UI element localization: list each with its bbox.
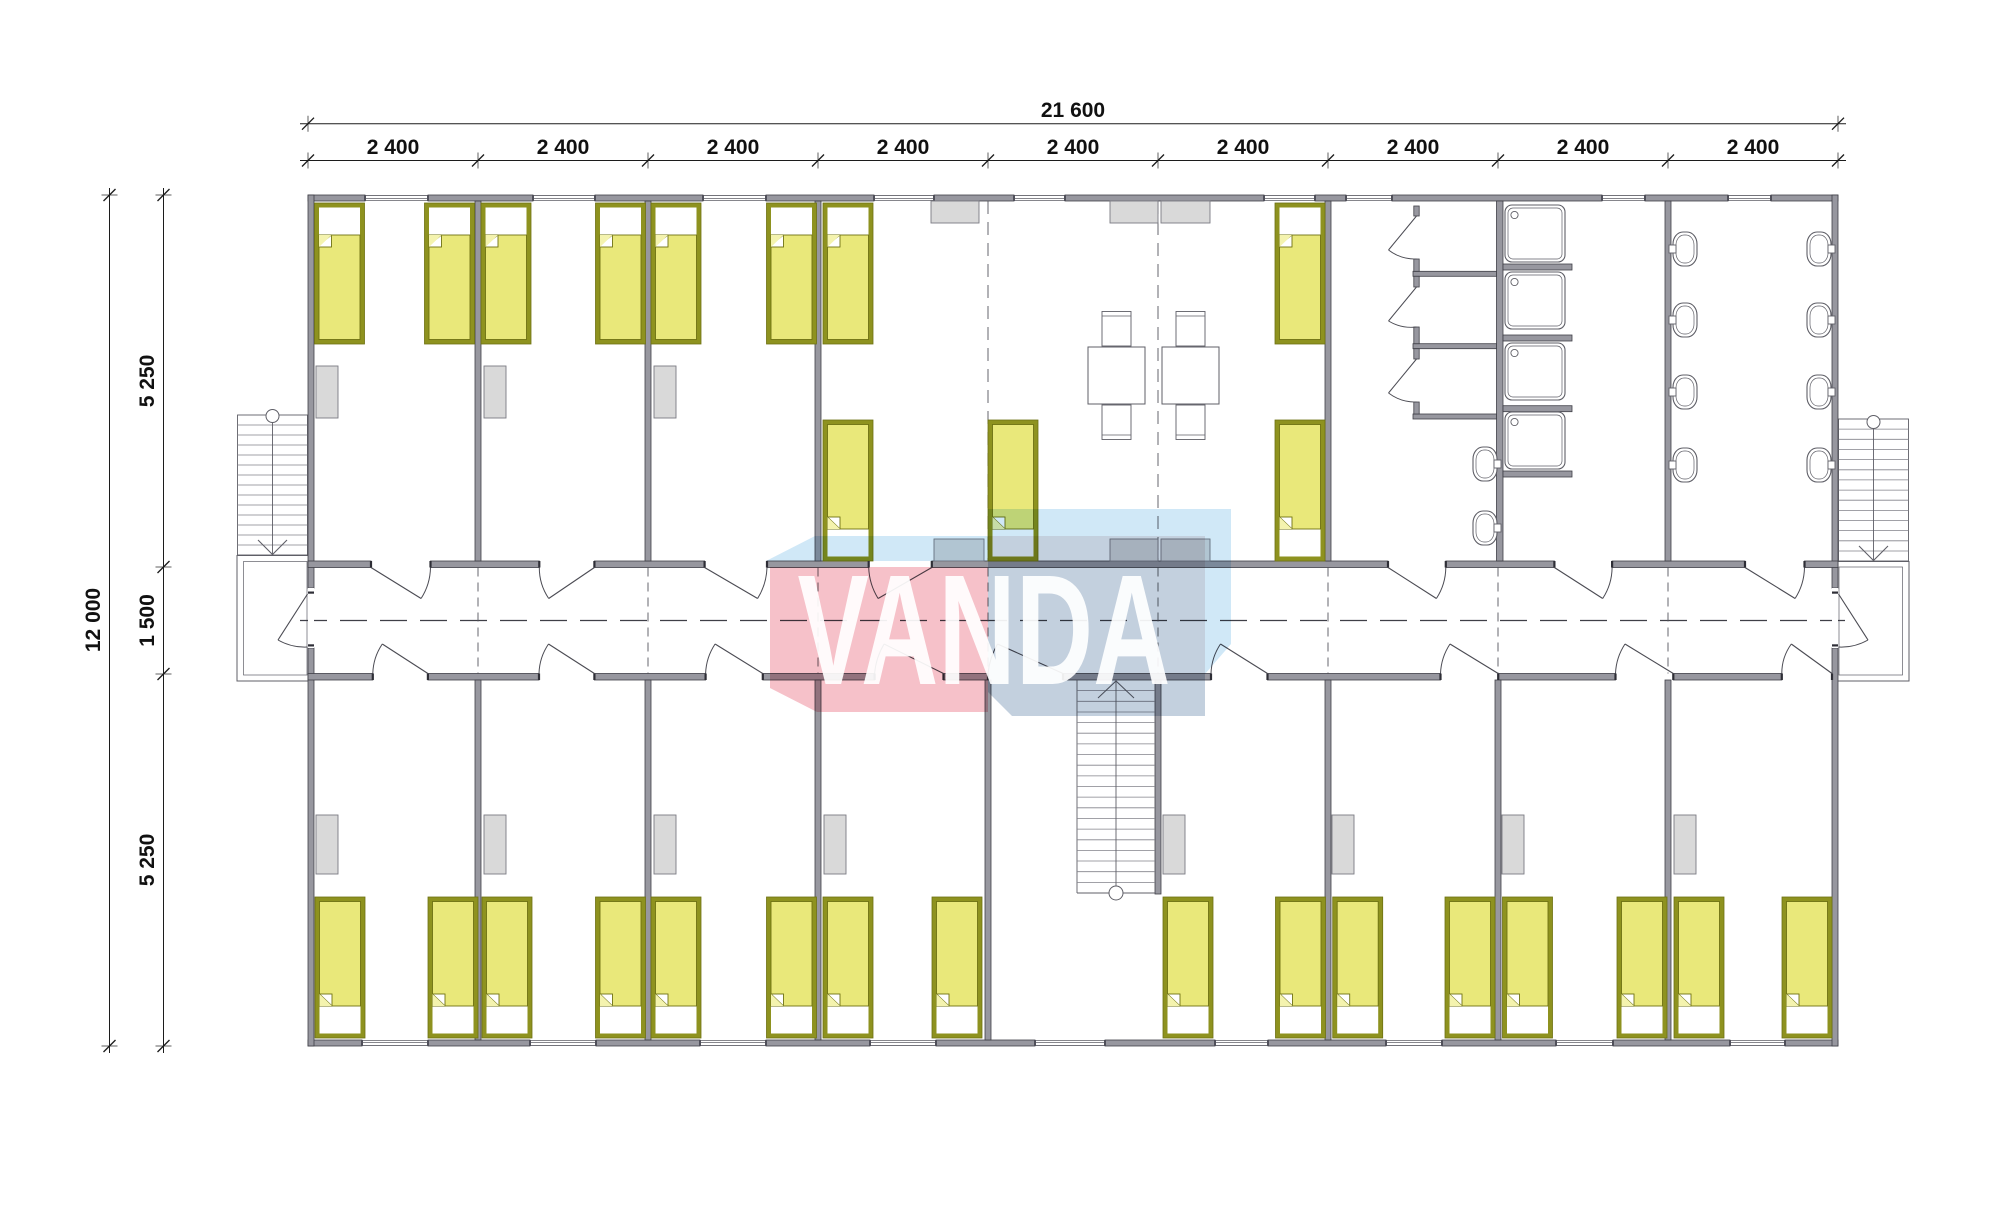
- svg-text:2 400: 2 400: [877, 136, 930, 159]
- svg-text:2 400: 2 400: [1047, 136, 1100, 159]
- svg-text:21 600: 21 600: [1041, 99, 1105, 122]
- svg-text:5 250: 5 250: [136, 355, 159, 408]
- svg-text:2 400: 2 400: [1727, 136, 1780, 159]
- svg-text:2 400: 2 400: [1387, 136, 1440, 159]
- svg-text:2 400: 2 400: [367, 136, 420, 159]
- svg-text:5 250: 5 250: [136, 834, 159, 887]
- svg-text:2 400: 2 400: [707, 136, 760, 159]
- svg-text:2 400: 2 400: [1217, 136, 1270, 159]
- svg-text:1 500: 1 500: [136, 594, 159, 647]
- svg-text:2 400: 2 400: [537, 136, 590, 159]
- svg-text:12 000: 12 000: [82, 588, 105, 652]
- svg-text:2 400: 2 400: [1557, 136, 1610, 159]
- svg-text:VANDA: VANDA: [798, 543, 1171, 718]
